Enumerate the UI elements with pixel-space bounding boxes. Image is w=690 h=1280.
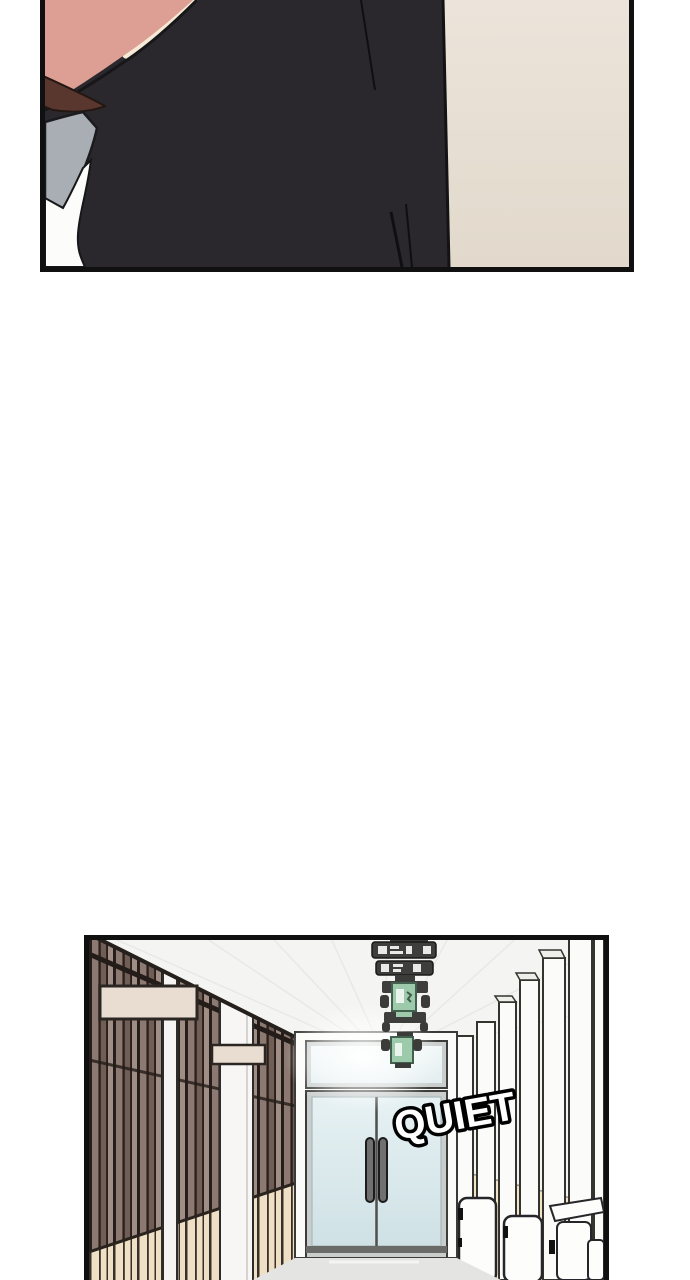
background-wall <box>443 0 629 267</box>
closeup-panel <box>40 0 634 272</box>
classroom-nameplate <box>100 986 197 1019</box>
classroom-nameplate <box>212 1045 265 1064</box>
ceiling-sign-icon <box>372 942 436 958</box>
door-handle <box>379 1138 387 1202</box>
ceiling-sign-icon <box>376 961 433 975</box>
exit-sign-icon <box>380 981 430 1011</box>
hallway-panel: QUIET <box>84 935 609 1280</box>
door-kick-rail <box>306 1246 447 1253</box>
door-handle <box>366 1138 374 1202</box>
closeup-panel-art <box>45 0 629 267</box>
hall-pillar-left-b <box>220 996 253 1280</box>
hallway-panel-art: QUIET <box>89 940 604 1280</box>
comic-page: QUIET <box>0 0 690 1280</box>
